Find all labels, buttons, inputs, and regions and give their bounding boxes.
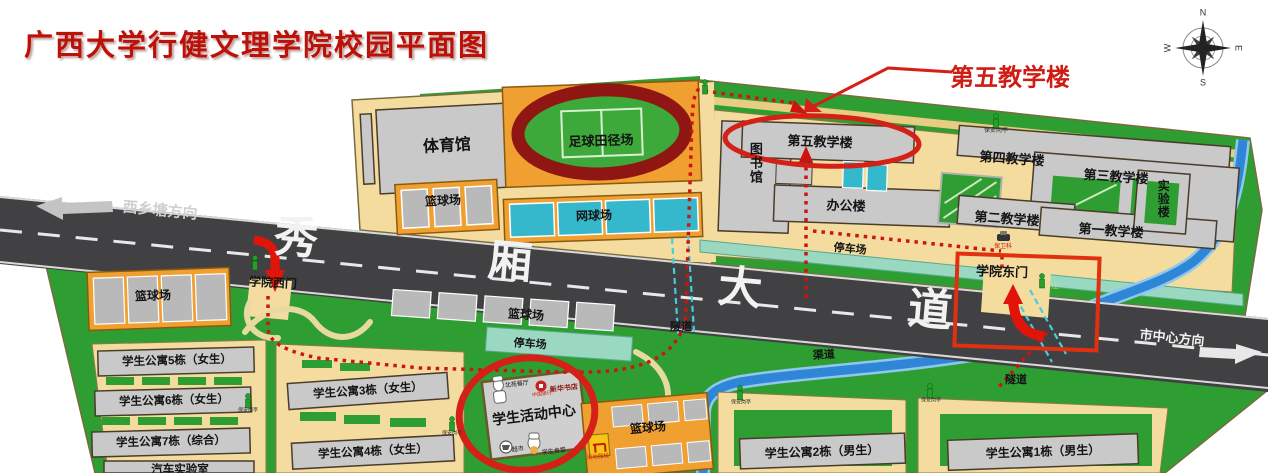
road-char-dao: 道: [906, 286, 954, 336]
office-label: 办公楼: [826, 199, 865, 214]
tunnel-east-label: 隧道: [1005, 375, 1027, 387]
tennis-label: 网球场: [576, 209, 612, 223]
east-gate-label: 学院东门: [976, 264, 1028, 279]
teach5-callout-label: 第五教学楼: [950, 65, 1070, 90]
page-title: 广西大学行健文理学院校园平面图: [24, 22, 489, 64]
guard-booth-label-mid: 保安岗亭: [442, 431, 462, 436]
compass-s: S: [1200, 78, 1206, 87]
security-section-label: 保卫科: [994, 244, 1012, 250]
guard-booth-label-se1: 保安岗亭: [921, 398, 941, 403]
basketball-nw-label: 篮球场: [425, 194, 462, 208]
road-char-xiang: 厢: [486, 238, 534, 288]
compass-n: N: [1200, 8, 1207, 17]
road-char-da: 大: [716, 264, 764, 314]
stadium-label: 足球田径场: [568, 133, 633, 149]
basketball-sw-label: 篮球场: [135, 289, 171, 303]
library-label: 图书馆: [748, 142, 762, 184]
west-gate-label: 学院西门: [249, 275, 298, 290]
basketball-se-label: 篮球场: [630, 420, 667, 436]
tunnel-west-label: 隧道: [670, 322, 692, 334]
lab-label: 实验楼: [1157, 180, 1170, 219]
parking-south-label: 停车场: [513, 338, 547, 352]
road-char-xiu: 秀: [272, 214, 320, 264]
gatekeeper-label: 门卫: [1047, 284, 1059, 290]
gym-label: 体育馆: [423, 137, 472, 156]
guard-booth-label-se2: 保安岗亭: [731, 400, 751, 405]
guard-booth-label-sw: 保安岗亭: [238, 408, 258, 413]
guard-booth-label-n: 保安岗亭: [984, 128, 1008, 134]
basketball-mid-label: 篮球场: [508, 307, 545, 322]
canal-label: 渠道: [813, 349, 836, 362]
campus-map: 广西大学行健文理学院校园平面图 第五教学楼 N S E W 西乡塘方向 秀 厢 …: [0, 0, 1268, 473]
teach5-label: 第五教学楼: [787, 134, 852, 150]
compass-w: W: [1163, 44, 1172, 53]
compass-e: E: [1233, 45, 1242, 51]
cart-icon: [500, 441, 512, 453]
bank-logo-hole: [539, 384, 543, 388]
compass-rose-icon: [1175, 20, 1231, 76]
auto-lab-label: 汽车实验室: [151, 464, 209, 473]
